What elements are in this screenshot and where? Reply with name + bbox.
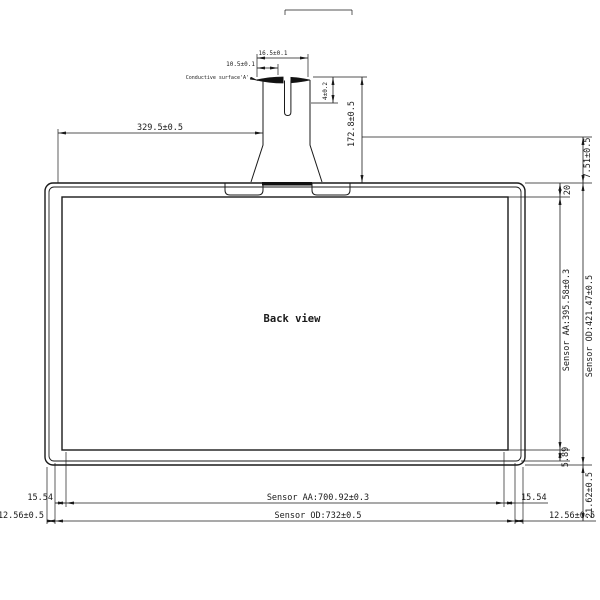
dim-tail-offset-label: 329.5±0.5	[137, 123, 183, 133]
dim-top-margin-label: 7.51±0.5	[583, 138, 593, 179]
fpc-tail	[225, 74, 350, 196]
dim-tail-length-label: 172.8±0.5	[347, 101, 357, 147]
dim-left-edge-label: 12.56±0.5	[0, 511, 44, 521]
conductive-surface-leader	[250, 78, 258, 81]
dim-pad-height-label: 4±0.2	[322, 82, 329, 100]
sensor-drawing: Back view 16.5±0.1 10.5±0.1 Conductive s…	[0, 0, 600, 600]
fpc-left-tab	[225, 183, 263, 195]
dim-right-edge-label: 12.56±0.5	[549, 511, 595, 521]
view-title-label: Back view	[264, 313, 322, 325]
dim-top-border-label: 20	[563, 185, 573, 195]
technical-drawing-page: Back view 16.5±0.1 10.5±0.1 Conductive s…	[0, 0, 600, 600]
sensor-aa-horizontal-label: Sensor AA:700.92±0.3	[267, 493, 369, 503]
dim-pad-outer-label: 16.5±0.1	[259, 50, 288, 57]
fpc-tail-left-edge	[251, 80, 263, 182]
dimension-lines	[47, 58, 583, 521]
conductive-surface-label: Conductive surface'A'	[186, 75, 249, 81]
sensor-aa-vertical-label: Sensor AA:395.58±0.3	[562, 269, 572, 371]
sensor-od-vertical-label: Sensor OD:421.47±0.5	[585, 275, 595, 377]
dim-left-border-label: 15.54	[27, 493, 53, 503]
connector-pad	[256, 77, 310, 83]
dim-pad-inner-label: 10.5±0.1	[226, 61, 255, 68]
fpc-bond-bar	[262, 182, 312, 186]
dim-right-border-label: 15.54	[521, 493, 547, 503]
sensor-od-horizontal-label: Sensor OD:732±0.5	[275, 511, 362, 521]
fpc-right-tab	[312, 183, 350, 195]
fpc-tail-right-edge	[310, 80, 322, 182]
fpc-slot	[285, 81, 291, 116]
dim-bottom-inner-label: 5.89	[561, 447, 571, 467]
